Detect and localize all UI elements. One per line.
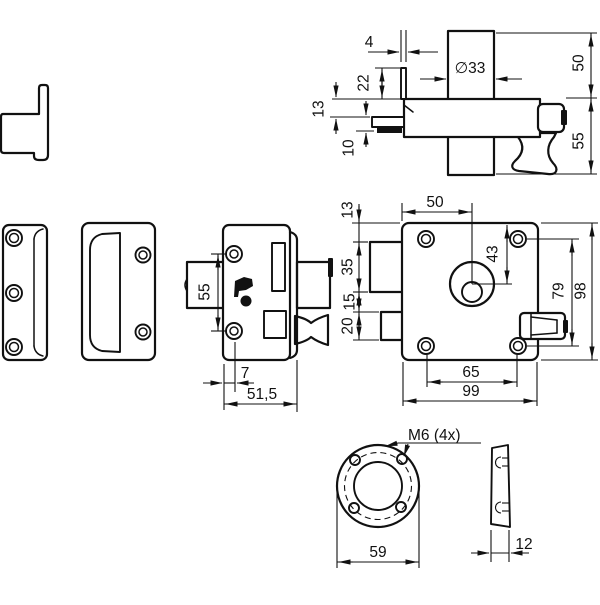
flat-plate-view bbox=[3, 225, 47, 360]
rosette-side-dimensions: 12 bbox=[471, 530, 533, 562]
side-slot-small bbox=[264, 311, 286, 338]
dim-label-spacing: 15 bbox=[342, 293, 359, 310]
cylinder-cap bbox=[538, 104, 564, 132]
dim-label-flange-width: 4 bbox=[365, 34, 374, 51]
dim-label-hole-pitch-vertical: 79 bbox=[551, 282, 568, 299]
side-knob bbox=[295, 315, 328, 345]
side-door-section bbox=[297, 262, 330, 308]
keeper-opening bbox=[90, 233, 120, 352]
side-retainer-clip bbox=[328, 258, 333, 277]
front-cylinder-housing bbox=[370, 242, 403, 292]
dim-label-rosette-diameter: 59 bbox=[369, 544, 386, 561]
dim-label-center-depth: 43 bbox=[485, 245, 502, 262]
dim-label-cylinder-offset: 50 bbox=[426, 194, 444, 211]
dim-label-edge-to-hole: 7 bbox=[241, 365, 250, 382]
lock-front-view: 50 13 35 15 20 43 bbox=[340, 194, 599, 406]
dim-label-side-hole-pitch: 55 bbox=[197, 283, 214, 300]
dim-label-lower-height: 55 bbox=[571, 132, 588, 149]
dim-label-rosette-thickness: 12 bbox=[515, 536, 532, 553]
dim-label-housing-height: 35 bbox=[340, 258, 357, 275]
rosette-front-view: M6 (4x) 59 bbox=[337, 427, 481, 568]
bracket-outline bbox=[1, 85, 48, 160]
dim-label-case-width: 99 bbox=[462, 383, 479, 400]
cylinder-barrel bbox=[404, 99, 540, 137]
dim-label-upper-height: 50 bbox=[571, 54, 588, 72]
keeper-plate-view bbox=[82, 223, 155, 360]
tail-piece-cam bbox=[377, 127, 402, 133]
dim-label-thread-callout: M6 (4x) bbox=[408, 427, 461, 444]
cylinder-side-view: 4 ∅33 22 13 10 50 bbox=[311, 30, 598, 175]
rosette-inner-circle bbox=[354, 462, 402, 510]
technical-drawing-canvas: 55 7 51,5 bbox=[0, 0, 600, 600]
dim-label-case-height: 98 bbox=[573, 282, 590, 299]
mounting-flange bbox=[401, 68, 406, 99]
thumbturn-knob bbox=[512, 133, 556, 174]
dim-label-tail-offset: 13 bbox=[311, 100, 328, 117]
dim-label-top-margin: 13 bbox=[340, 201, 357, 218]
front-bolt-housing bbox=[381, 312, 403, 340]
side-slot-tall bbox=[272, 243, 285, 291]
drawing-page: 55 7 51,5 bbox=[0, 0, 600, 600]
dim-label-tail-thickness: 10 bbox=[341, 139, 358, 157]
dim-label-case-depth: 51,5 bbox=[247, 386, 277, 403]
lock-side-view: 55 7 51,5 bbox=[185, 225, 333, 412]
cap-retainer-clip bbox=[561, 110, 567, 125]
tail-piece bbox=[372, 117, 404, 127]
rosette-side-view: 12 bbox=[471, 445, 533, 562]
strike-bracket-view bbox=[1, 85, 48, 160]
dim-label-bolt-height: 20 bbox=[340, 317, 357, 335]
dim-label-cylinder-diameter: ∅33 bbox=[455, 60, 486, 77]
dim-label-flange-height: 22 bbox=[356, 74, 373, 91]
latch-bolt bbox=[520, 313, 568, 339]
dim-label-hole-pitch-horizontal: 65 bbox=[462, 364, 479, 381]
